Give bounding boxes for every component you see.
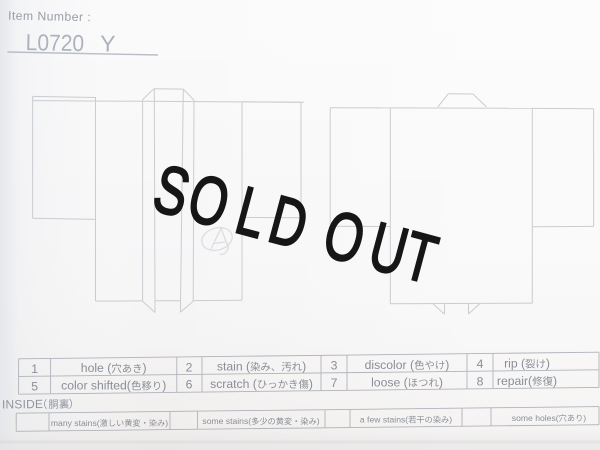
svg-text:rip (: rip (	[504, 357, 525, 371]
svg-text:): )	[143, 361, 147, 375]
svg-text:scratch (: scratch (	[210, 377, 257, 391]
svg-text:loose (: loose (	[371, 375, 408, 389]
svg-text:): )	[302, 360, 306, 374]
svg-text:color shifted(: color shifted(	[61, 379, 131, 393]
svg-text:many stains(: many stains(	[51, 418, 100, 428]
svg-text:): )	[317, 416, 320, 426]
svg-text:5: 5	[31, 379, 38, 393]
svg-text:repair(: repair(	[497, 374, 532, 388]
svg-text:a few stains(: a few stains(	[360, 415, 408, 425]
svg-text:2: 2	[186, 360, 193, 374]
svg-text:): )	[309, 377, 313, 391]
svg-text:): )	[546, 357, 550, 371]
svg-text:Item Number :: Item Number :	[8, 9, 91, 25]
svg-text:1: 1	[31, 362, 38, 376]
svg-text:INSIDE: INSIDE	[2, 397, 43, 412]
svg-text:6: 6	[186, 378, 193, 392]
svg-text:some stains(: some stains(	[202, 416, 251, 426]
svg-text:3: 3	[331, 359, 338, 373]
svg-text:): )	[165, 418, 168, 428]
svg-text:discolor (: discolor (	[365, 358, 414, 372]
svg-text:): )	[162, 379, 166, 393]
svg-text:7: 7	[331, 376, 338, 390]
svg-text:hole (: hole (	[81, 361, 112, 375]
svg-text:): )	[439, 375, 443, 389]
svg-text:4: 4	[477, 357, 484, 371]
svg-text:): )	[449, 415, 452, 425]
svg-text:): )	[445, 358, 449, 372]
svg-text:): )	[583, 413, 586, 423]
svg-text:8: 8	[477, 375, 484, 389]
svg-text:): )	[553, 374, 557, 388]
svg-text:stain (: stain (	[217, 360, 250, 374]
svg-text:some holes(: some holes(	[512, 413, 559, 423]
